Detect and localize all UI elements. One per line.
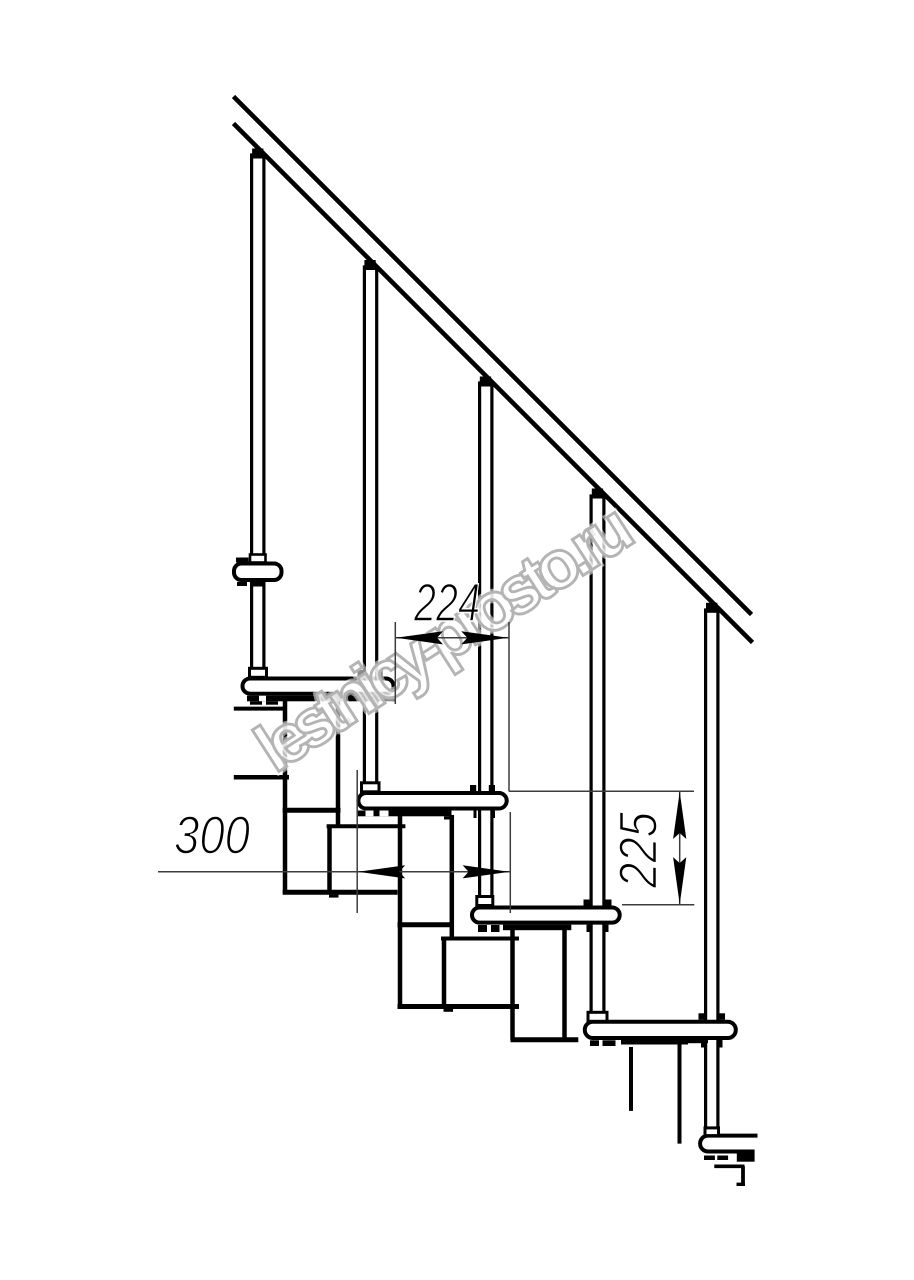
svg-text:225: 225	[610, 812, 669, 889]
svg-text:300: 300	[174, 807, 250, 866]
svg-text:224: 224	[413, 574, 480, 633]
